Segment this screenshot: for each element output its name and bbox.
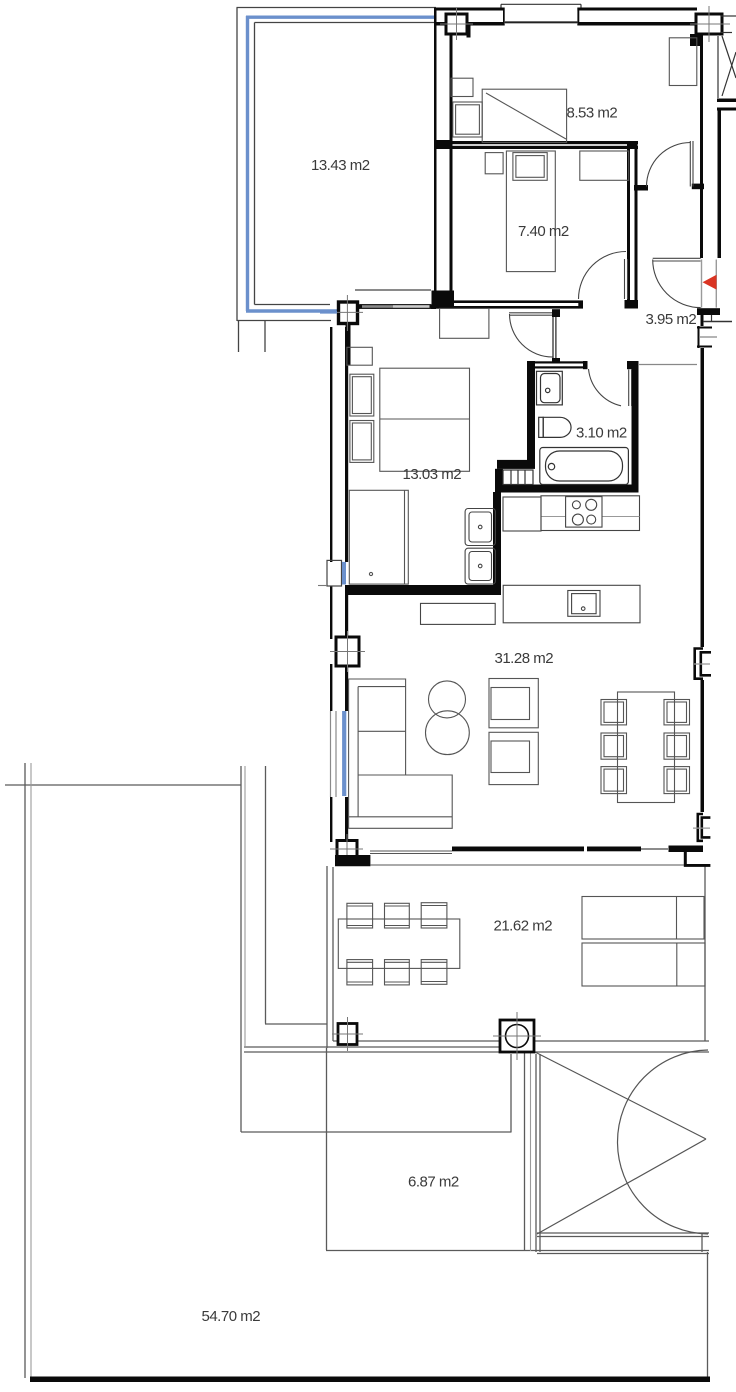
svg-text:3.10 m2: 3.10 m2 <box>576 425 627 442</box>
svg-text:13.03 m2: 13.03 m2 <box>403 466 462 483</box>
svg-text:8.53 m2: 8.53 m2 <box>567 105 618 122</box>
svg-text:31.28 m2: 31.28 m2 <box>495 650 554 667</box>
svg-text:13.43 m2: 13.43 m2 <box>311 157 370 174</box>
svg-text:3.95 m2: 3.95 m2 <box>646 311 697 328</box>
svg-text:54.70 m2: 54.70 m2 <box>202 1308 261 1325</box>
svg-text:7.40 m2: 7.40 m2 <box>518 223 569 240</box>
svg-text:21.62 m2: 21.62 m2 <box>494 918 553 935</box>
svg-text:6.87 m2: 6.87 m2 <box>408 1174 459 1191</box>
